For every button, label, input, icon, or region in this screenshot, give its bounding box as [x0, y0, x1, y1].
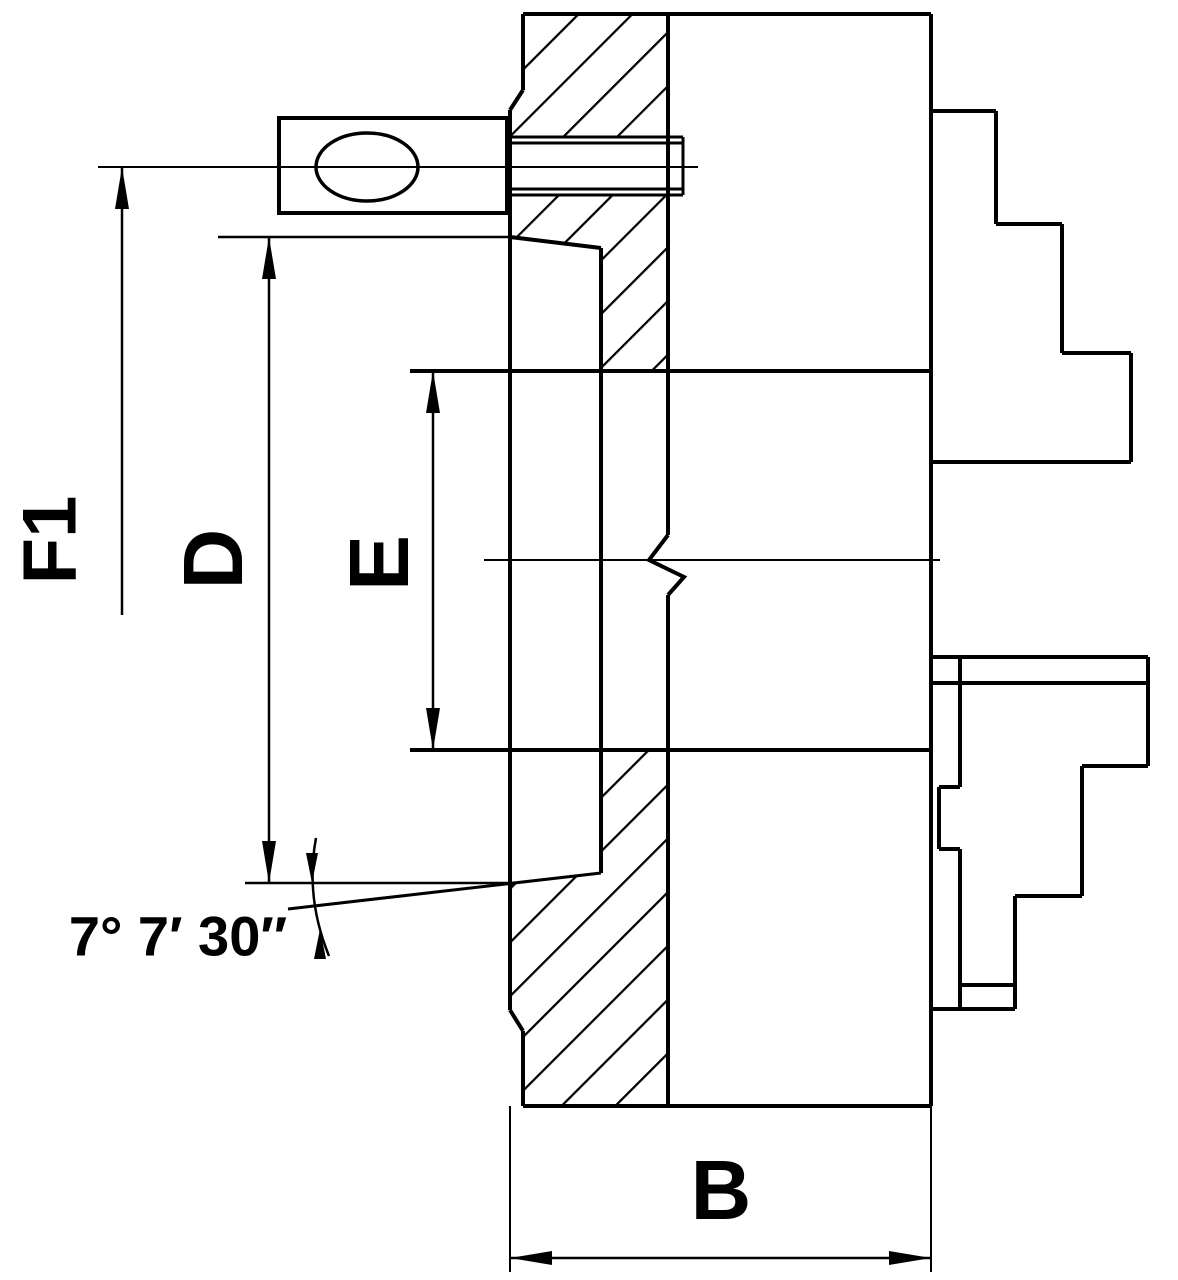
dimension-label-angle: 7° 7′ 30″ [69, 905, 287, 968]
technical-drawing: F1DEB7° 7′ 30″ [0, 0, 1178, 1280]
drawing-page: F1DEB7° 7′ 30″ [0, 0, 1178, 1280]
dimension-label-f1: F1 [8, 496, 93, 585]
flange-section-top [510, 14, 668, 137]
key-block [279, 118, 507, 213]
dimension-label-e: E [332, 535, 426, 591]
dimension-label-d: D [166, 529, 260, 590]
dimension-label-b: B [691, 1143, 752, 1237]
